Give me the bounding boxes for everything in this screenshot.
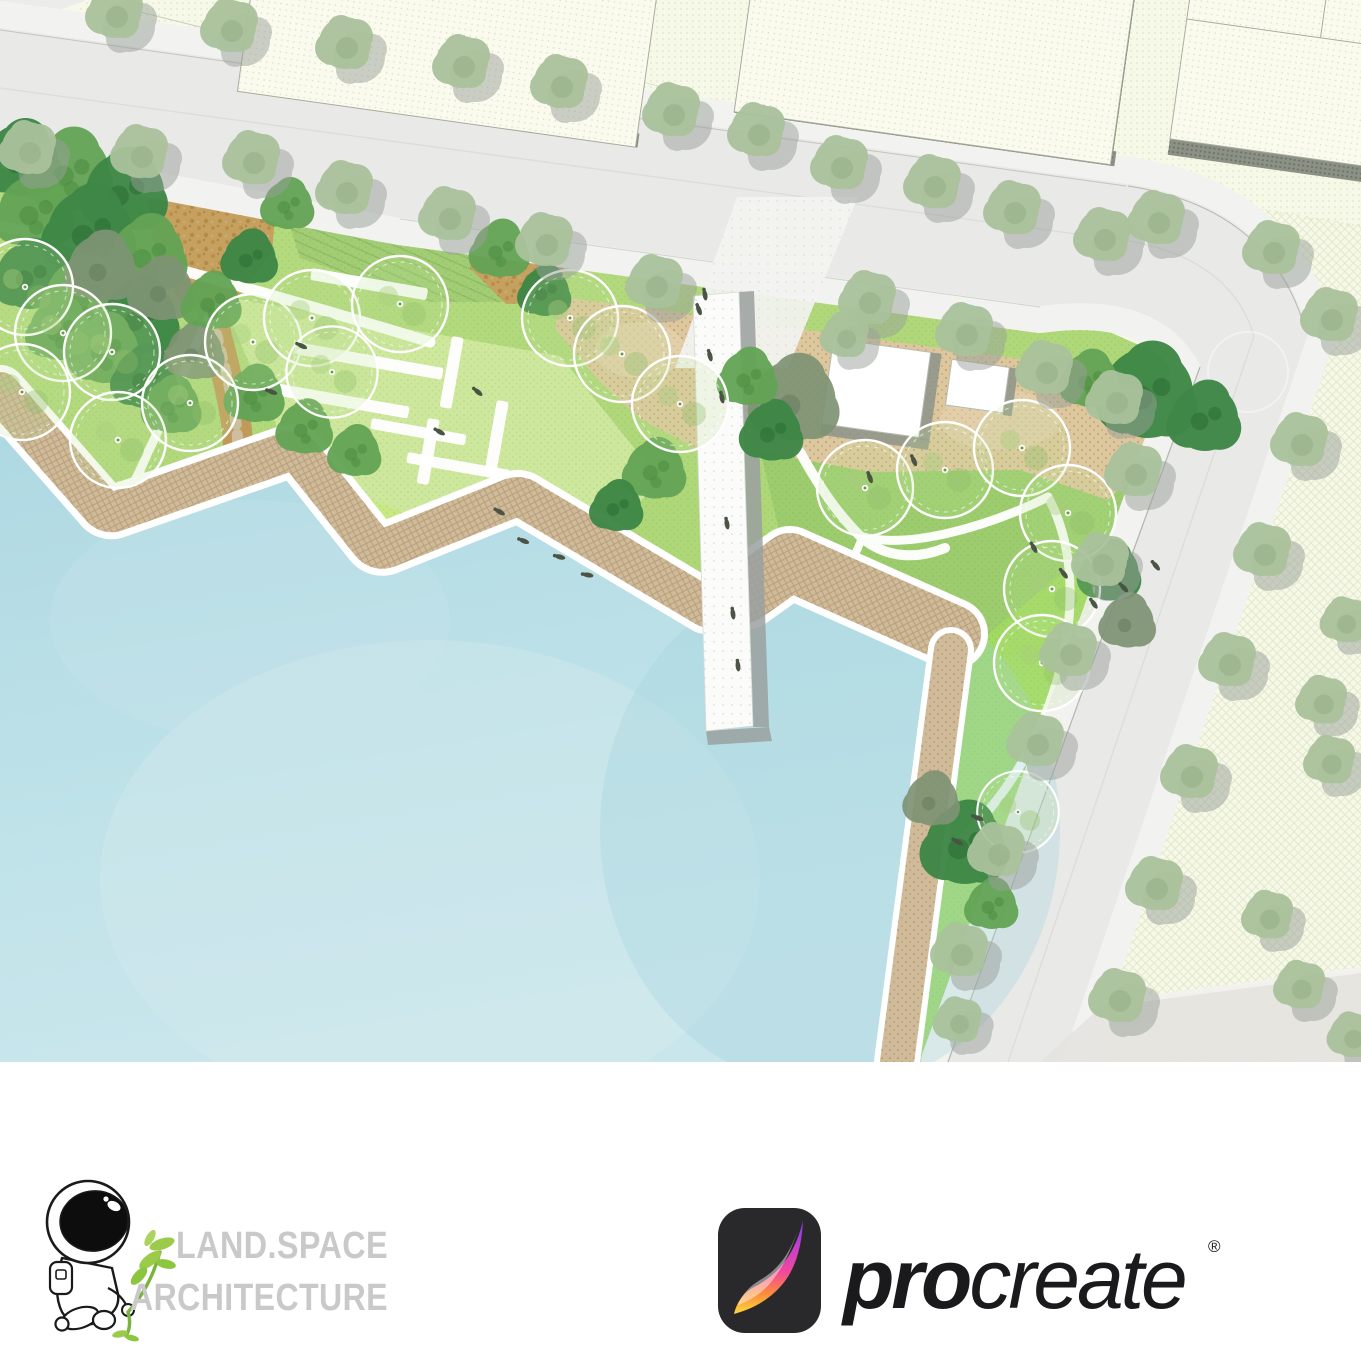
studio-name-line1: LAND.SPACE <box>176 1225 388 1267</box>
site-plan-illustration: LAND.SPACE ARCHITECTURE procreate ® <box>0 0 1361 1361</box>
screenshot-canvas: LAND.SPACE ARCHITECTURE procreate ® <box>0 0 1361 1361</box>
studio-name-line2: ARCHITECTURE <box>130 1277 388 1319</box>
wordmark-create: create <box>969 1232 1185 1326</box>
procreate-app-icon <box>718 1208 821 1333</box>
canopy-tree <box>286 326 377 417</box>
wordmark-pro: pro <box>841 1232 970 1326</box>
footer: LAND.SPACE ARCHITECTURE procreate ® <box>0 1062 1361 1361</box>
procreate-wordmark: procreate <box>841 1232 1185 1326</box>
registered-mark: ® <box>1208 1237 1221 1256</box>
canopy-tree <box>632 356 728 452</box>
canopy-tree <box>352 256 448 352</box>
